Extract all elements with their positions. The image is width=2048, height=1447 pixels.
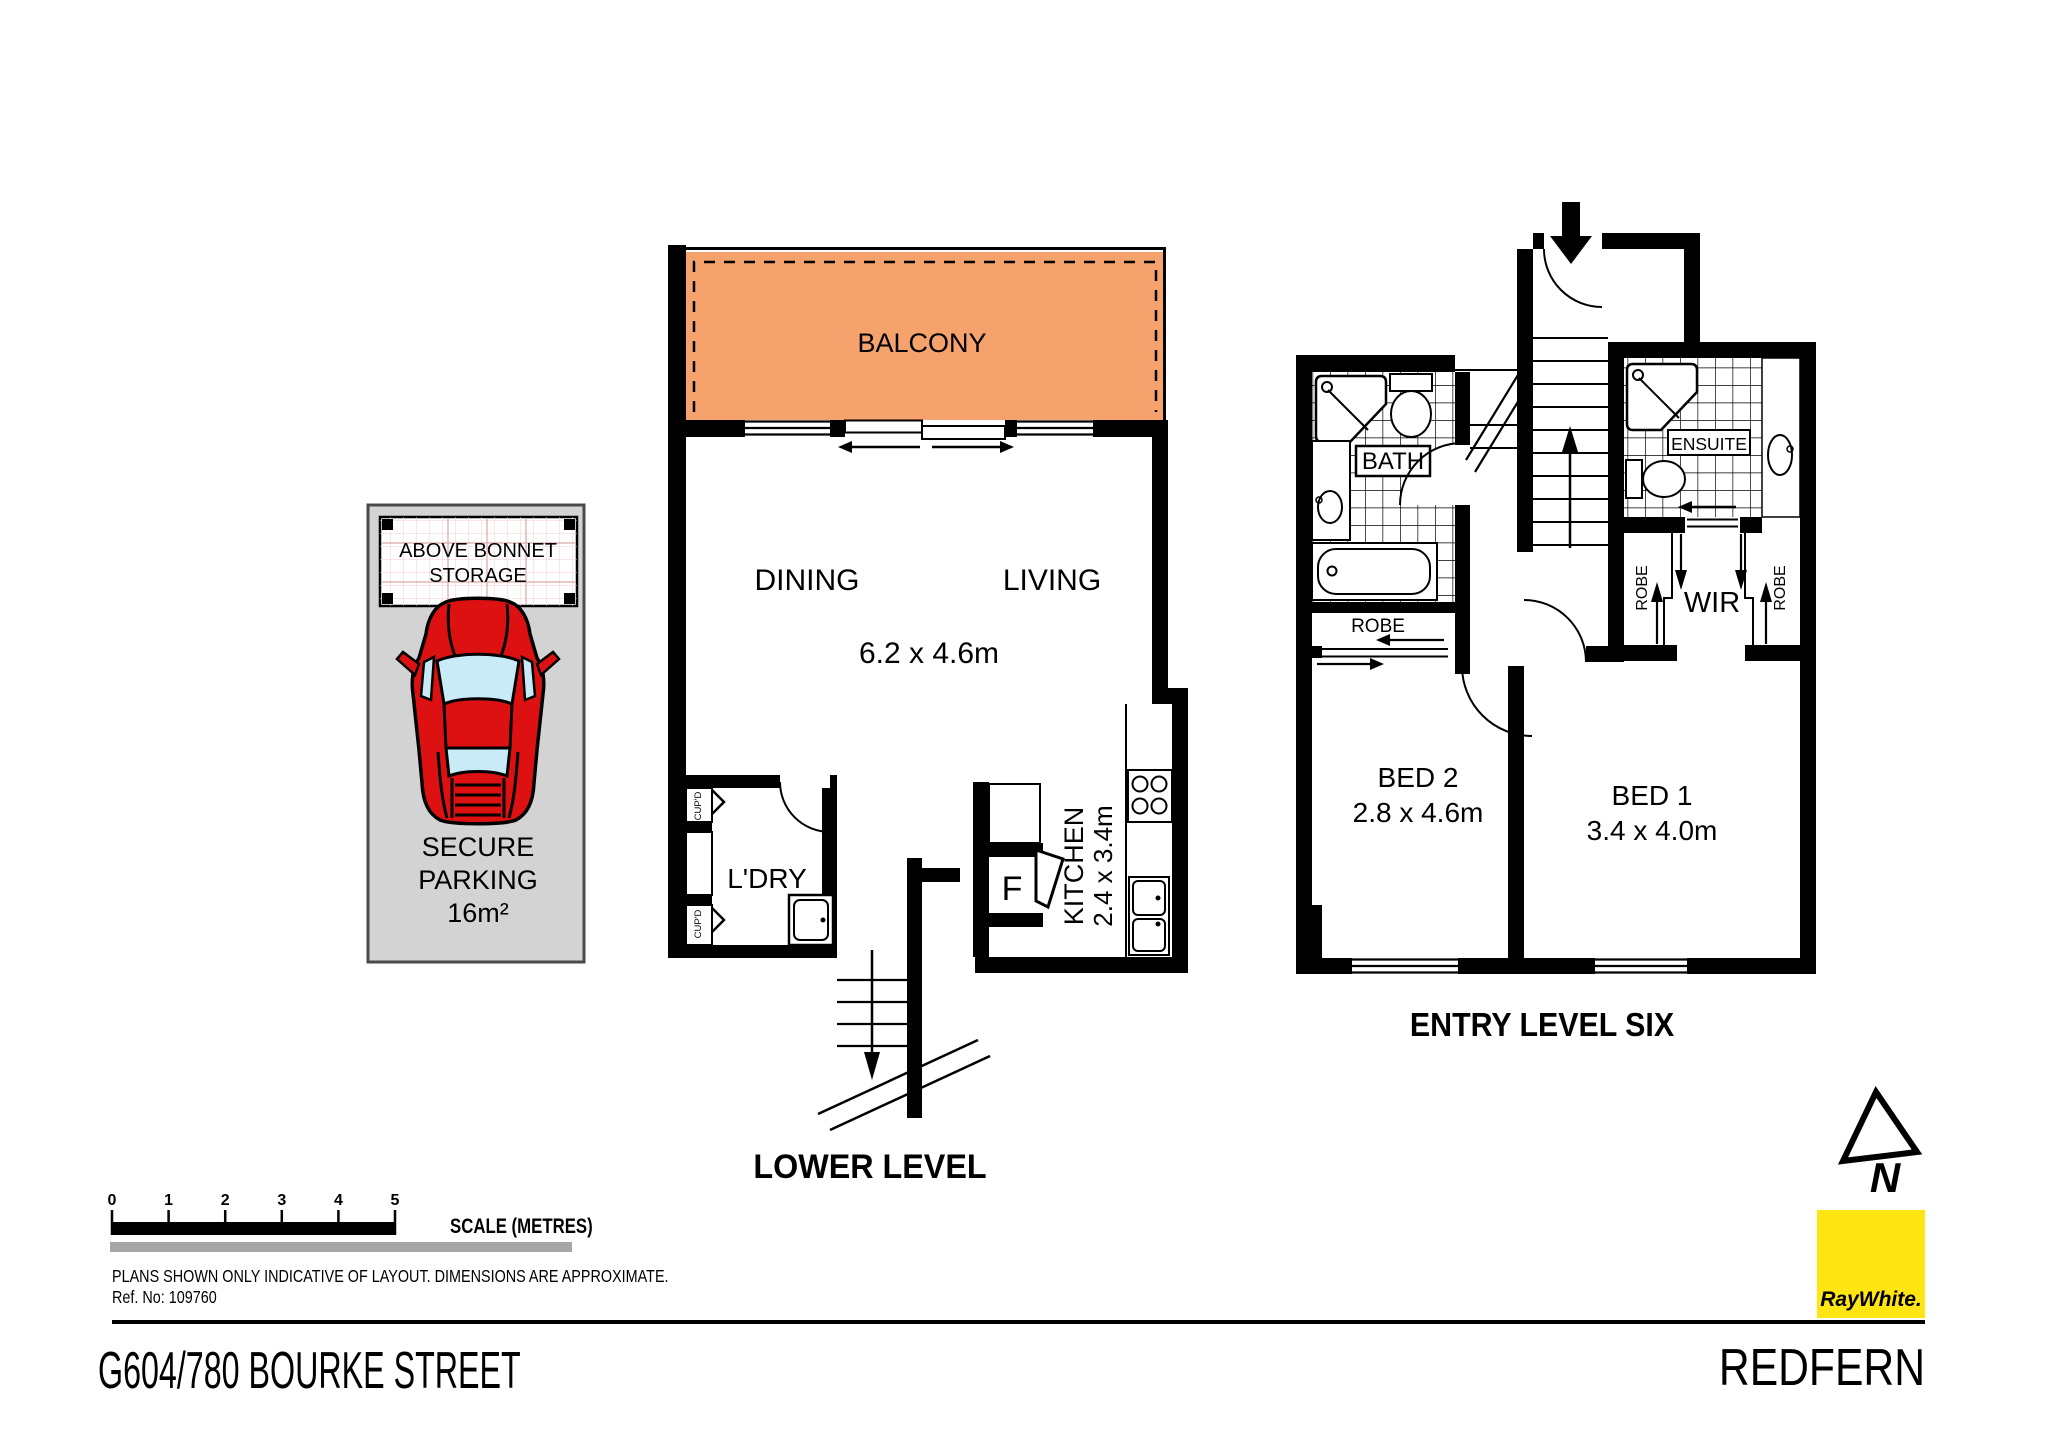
bed1-dims: 3.4 x 4.0m [1587,815,1718,846]
living-dims: 6.2 x 4.6m [859,637,999,670]
stairs-down-arrow [864,1052,880,1080]
secure-parking-line2: PARKING [418,865,538,895]
balcony-windows [745,420,1093,453]
lower-level-title: LOWER LEVEL [753,1148,986,1186]
robe-track [1322,649,1448,657]
north-arrow: N [1843,1092,1917,1201]
sliding-door-panel [845,421,922,433]
scale-tick-label: 4 [334,1192,343,1209]
ensuite-basin-icon [1768,435,1792,475]
dining-label: DINING [755,564,860,597]
laundry-room: CUP'D CUP'D L'DRY [686,782,833,945]
entry-level-title: ENTRY LEVEL SIX [1410,1006,1674,1043]
secure-parking-line1: SECURE [422,832,535,862]
scale-label: SCALE (METRES) [450,1215,593,1238]
entry-arrow [1550,202,1592,264]
suburb: REDFERN [1719,1339,1925,1397]
kitchen-dims: 2.4 x 3.4m [1088,805,1118,926]
disclaimer: PLANS SHOWN ONLY INDICATIVE OF LAYOUT. D… [112,1267,669,1287]
walk-in-robe: ROBE ROBE WIR [1634,533,1789,645]
sliding-door-arrows [838,441,1014,453]
bath-label: BATH [1362,448,1424,475]
vanity-icon [1312,441,1350,540]
entry-level-plan: BATH ENSUITE [1296,202,1816,1043]
wir-label: WIR [1684,587,1740,619]
stairs-down [818,950,990,1130]
scale-tick-label: 5 [391,1192,400,1209]
laundry-sink-icon [789,895,833,945]
pantry-niche [989,784,1040,843]
car-rear-window [446,748,510,776]
scale-gray-bar [110,1242,572,1252]
bed2-dims: 2.8 x 4.6m [1353,797,1484,828]
scale-tick-label: 1 [164,1192,173,1209]
kitchen-sink-icon [1129,877,1169,955]
scale-tick-label: 0 [108,1192,117,1209]
balcony-label: BALCONY [857,328,986,358]
footer-rule [112,1320,1925,1324]
address: G604/780 BOURKE STREET [98,1342,521,1400]
footer-text: PLANS SHOWN ONLY INDICATIVE OF LAYOUT. D… [98,1267,1925,1400]
secure-parking-line3: 16m² [447,898,509,928]
car-body [412,598,544,824]
robe-label: ROBE [1351,616,1405,637]
bathtub-icon [1312,543,1437,600]
living-label: LIVING [1003,564,1101,597]
parking-space: ABOVE BONNET STORAGE SECURE PARKING 16m² [368,505,584,962]
scale-tick-label: 2 [221,1192,230,1209]
branding: N RayWhite. [1817,1092,1925,1318]
scale-tick-label: 3 [277,1192,286,1209]
scale-bar: 0 1 2 3 4 5 SCALE (METRES) [108,1192,593,1252]
ensuite-label: ENSUITE [1671,434,1747,454]
bed2-label: BED 2 [1378,762,1459,793]
robe-label: ROBE [1772,565,1789,610]
cupboard-label: CUP'D [693,791,704,820]
logo-text: RayWhite. [1820,1288,1922,1311]
cupboard-recess [686,832,712,895]
compass-n: N [1870,1154,1902,1201]
fridge-label: F [1002,870,1023,908]
cooktop-icon [1128,770,1172,822]
laundry-label: L'DRY [727,863,807,894]
above-bonnet-storage-sign: ABOVE BONNET STORAGE [380,517,577,606]
sliding-door-panel [922,426,1005,439]
bed1-label: BED 1 [1612,780,1693,811]
storage-sign-line1: ABOVE BONNET [399,540,557,562]
reference-number: Ref. No: 109760 [112,1288,217,1308]
bed1-door-arc [1524,600,1586,662]
lower-level-plan: CUP'D CUP'D L'DRY F K [668,245,1188,1186]
storage-sign-line2: STORAGE [429,565,526,587]
floor-plan-canvas: ABOVE BONNET STORAGE SECURE PARKING 16m² [0,0,2048,1447]
toilet-icon [1390,374,1432,437]
toilet-icon [1626,460,1685,498]
cupboard-label: CUP'D [693,909,704,938]
robe-label: ROBE [1634,565,1651,610]
kitchen-label: KITCHEN [1059,807,1089,926]
car-windshield [437,654,519,704]
raywhite-logo: RayWhite. [1817,1210,1925,1318]
bed2-robe: ROBE [1312,616,1448,670]
stair-break-lines [818,1040,990,1130]
